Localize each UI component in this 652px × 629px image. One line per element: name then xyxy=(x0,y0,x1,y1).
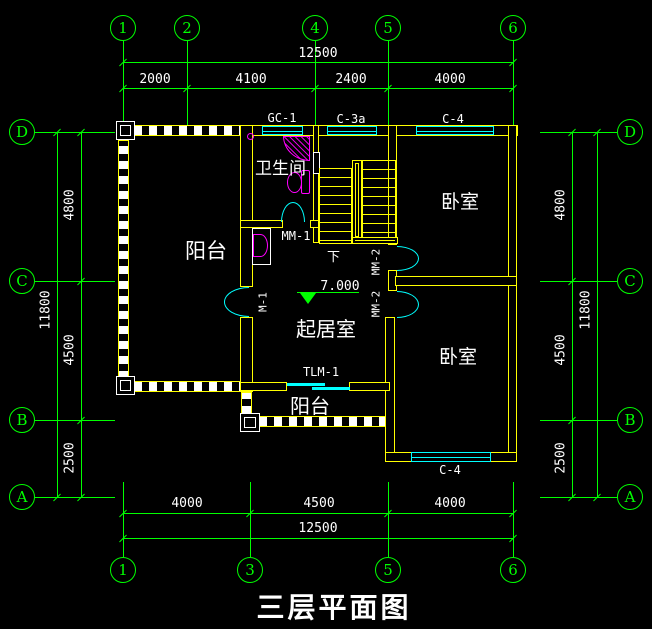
axis-bubble-left-B: B xyxy=(9,407,35,433)
axis-bubble-left-C: C xyxy=(9,268,35,294)
axis-line-left-D xyxy=(35,132,115,133)
axis-line-bottom-3 xyxy=(250,482,251,557)
dim-line-bottom-total xyxy=(123,538,513,539)
axis-bubble-left-A: A xyxy=(9,484,35,510)
axis-bubble-top-4: 4 xyxy=(302,15,328,41)
axis-bubble-bottom-5: 5 xyxy=(375,557,401,583)
axis-bubble-right-C: C xyxy=(617,268,643,294)
column-top-left xyxy=(116,121,135,140)
dim-text-bottom-seg3: 4000 xyxy=(434,496,465,511)
wall-living-bottom-left xyxy=(240,382,287,391)
dim-line-top-chain xyxy=(123,88,513,89)
hatched-wall-connector xyxy=(241,392,252,415)
room-label-bedroom-bottom: 卧室 xyxy=(439,342,477,369)
window-gc1 xyxy=(262,126,303,135)
dim-text-left-seg2: 4500 xyxy=(63,334,78,365)
wall-left-lower xyxy=(240,317,253,392)
stair-bottom-edge xyxy=(319,243,398,244)
tag-c3a: C-3a xyxy=(337,112,366,126)
dim-text-top-seg1: 2000 xyxy=(139,72,170,87)
axis-line-right-A xyxy=(540,497,617,498)
room-label-balcony-bottom: 阳台 xyxy=(290,390,330,419)
axis-bubble-top-6: 6 xyxy=(500,15,526,41)
tag-gc1: GC-1 xyxy=(268,111,297,125)
dim-text-right-seg3: 2500 xyxy=(554,442,569,473)
sliding-door-leaf1 xyxy=(287,383,325,386)
dim-line-left-chain xyxy=(81,132,82,497)
door-arc-m1 xyxy=(224,287,249,317)
stair-down-label: 下 xyxy=(327,246,340,265)
tag-c4-top: C-4 xyxy=(442,112,464,126)
hatched-wall-balcony-bottom xyxy=(133,381,241,392)
wall-bathroom-bottom-left xyxy=(240,220,283,228)
hatched-wall-balcony-top xyxy=(133,125,241,136)
hatched-wall-balcony-left xyxy=(118,140,129,380)
axis-bubble-bottom-1: 1 xyxy=(110,557,136,583)
drawing-title: 三层平面图 xyxy=(256,586,411,626)
floor-drain-icon xyxy=(247,133,254,140)
room-label-bedroom-top: 卧室 xyxy=(441,187,479,214)
axis-line-left-B xyxy=(35,420,115,421)
column-bottom-left xyxy=(116,376,135,395)
dim-line-bottom-chain xyxy=(123,513,513,514)
axis-bubble-top-1: 1 xyxy=(110,15,136,41)
axis-line-left-C xyxy=(35,281,115,282)
dim-line-right-total xyxy=(597,132,598,497)
tag-m1: M-1 xyxy=(257,292,270,312)
dim-text-right-seg1: 4800 xyxy=(554,189,569,220)
axis-line-left-A xyxy=(35,497,115,498)
axis-line-top-1 xyxy=(123,41,124,125)
dim-text-left-seg3: 2500 xyxy=(63,442,78,473)
axis-bubble-right-B: B xyxy=(617,407,643,433)
dim-text-bottom-seg1: 4000 xyxy=(171,496,202,511)
axis-line-bottom-6 xyxy=(513,482,514,557)
dim-text-right-total: 11800 xyxy=(579,290,594,329)
dim-text-bottom-total: 12500 xyxy=(298,521,337,536)
tag-mm2-a: MM-2 xyxy=(370,249,383,276)
room-label-living: 起居室 xyxy=(296,313,356,342)
wall-bedrooms-divider xyxy=(395,276,517,286)
dim-text-top-seg4: 4000 xyxy=(434,72,465,87)
dim-text-top-seg2: 4100 xyxy=(235,72,266,87)
axis-line-right-B xyxy=(540,420,617,421)
dim-text-top-total: 12500 xyxy=(298,46,337,61)
column-lower-balcony xyxy=(240,413,260,432)
cad-floorplan-canvas: 1 2 4 5 6 1 3 5 6 D C B A D C B A xyxy=(0,0,652,629)
stair-rail-vertical xyxy=(352,160,362,240)
level-value: 7.000 xyxy=(320,279,359,294)
axis-bubble-top-2: 2 xyxy=(174,15,200,41)
tag-tlm1: TLM-1 xyxy=(303,365,339,379)
axis-bubble-right-A: A xyxy=(617,484,643,510)
axis-line-bottom-1 xyxy=(123,482,124,557)
door-arc-mm2-a xyxy=(397,246,419,271)
axis-line-bottom-5 xyxy=(388,482,389,557)
sliding-door-leaf2 xyxy=(312,387,350,390)
wall-right xyxy=(508,125,517,462)
tag-c4-bottom: C-4 xyxy=(439,463,461,477)
axis-line-top-6 xyxy=(513,41,514,127)
axis-bubble-top-5: 5 xyxy=(375,15,401,41)
window-c3a xyxy=(327,126,377,135)
tag-mm1: MM-1 xyxy=(282,229,311,243)
axis-line-right-C xyxy=(540,281,617,282)
axis-line-right-D xyxy=(540,132,617,133)
dim-text-left-seg1: 4800 xyxy=(63,189,78,220)
dim-text-right-seg2: 4500 xyxy=(554,334,569,365)
dim-text-top-seg3: 2400 xyxy=(335,72,366,87)
dim-line-left-total xyxy=(57,132,58,497)
tag-mm2-b: MM-2 xyxy=(370,291,383,318)
axis-line-top-5 xyxy=(388,41,389,127)
axis-bubble-right-D: D xyxy=(617,119,643,145)
dim-text-bottom-seg2: 4500 xyxy=(303,496,334,511)
dim-text-left-total: 11800 xyxy=(39,290,54,329)
axis-bubble-bottom-6: 6 xyxy=(500,557,526,583)
door-arc-mm2-b xyxy=(397,291,419,318)
wall-bathroom-bottom-right xyxy=(310,220,319,228)
stair-flight-left xyxy=(319,168,352,244)
room-label-bathroom: 卫生间 xyxy=(255,154,306,179)
axis-line-top-2 xyxy=(187,41,188,127)
window-c4-bottom xyxy=(411,452,491,462)
room-label-balcony-left: 阳台 xyxy=(185,235,227,265)
dim-line-right-chain xyxy=(572,132,573,497)
window-c4-top xyxy=(416,126,494,135)
level-mark-triangle-icon xyxy=(300,293,316,304)
dim-line-top-total xyxy=(123,62,513,63)
axis-bubble-bottom-3: 3 xyxy=(237,557,263,583)
wall-living-bottom-right xyxy=(349,382,390,391)
door-arc-mm1 xyxy=(281,202,305,222)
axis-bubble-left-D: D xyxy=(9,119,35,145)
washbasin-icon xyxy=(253,234,268,257)
stair-flight-right xyxy=(362,160,396,244)
